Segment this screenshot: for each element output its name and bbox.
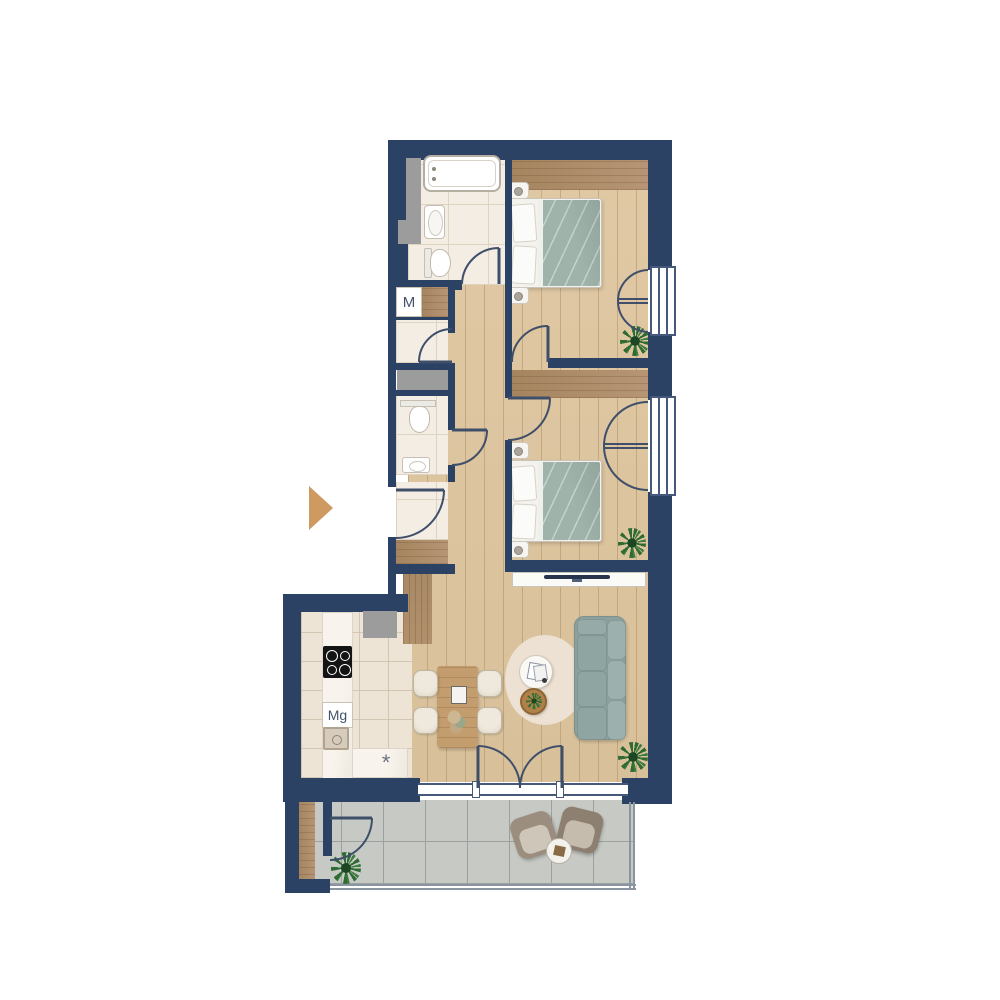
installation-shaft xyxy=(397,370,448,390)
wall-bedroom2-left xyxy=(505,368,512,398)
bedroom1-window xyxy=(650,266,676,336)
floor-plan-canvas: Mg * xyxy=(0,0,1000,1000)
closet-room-floor xyxy=(396,318,448,363)
wall-corridor-left xyxy=(448,282,455,333)
sofa-armrest xyxy=(577,619,607,635)
wall-right xyxy=(648,140,672,270)
balcony-wood-deck xyxy=(299,800,315,882)
wall-balcony-corner xyxy=(285,879,330,893)
balcony-window-sill xyxy=(418,783,628,796)
entry-hall-floor xyxy=(396,482,448,540)
kitchen-appliance-label: Mg xyxy=(322,702,353,728)
burner xyxy=(327,665,337,675)
bedroom2-pillow xyxy=(511,465,537,502)
wall-corridor-left xyxy=(448,363,455,430)
door-jamb xyxy=(472,781,480,798)
wall-right xyxy=(648,332,672,400)
bedroom2-duvet xyxy=(538,462,600,540)
bedroom1-duvet xyxy=(538,200,600,286)
wall-shaft-top xyxy=(393,363,448,370)
bathtub-inner xyxy=(428,160,496,187)
sofa-seat xyxy=(577,635,607,671)
burner xyxy=(339,664,351,676)
washing-machine-label: M xyxy=(396,287,422,317)
sofa-back-cushion xyxy=(607,660,626,700)
wall-left-middle xyxy=(388,282,396,487)
door-jamb xyxy=(556,781,564,798)
sink-basin xyxy=(428,210,443,236)
wall-bedroom1-left xyxy=(505,158,512,358)
coffee-table xyxy=(519,655,553,689)
sink-drain xyxy=(332,735,342,745)
closet-shelf xyxy=(422,287,448,317)
living-room-plant xyxy=(618,742,648,772)
burner xyxy=(326,650,338,662)
bedroom2-window xyxy=(650,396,676,496)
cooktop xyxy=(323,646,352,678)
installation-shaft xyxy=(406,158,421,220)
wall-right xyxy=(648,492,672,780)
tv-stand xyxy=(572,579,582,582)
wall-corridor-left xyxy=(448,465,455,482)
wc-sink-basin xyxy=(409,461,426,472)
wall-bedroom1-bottom xyxy=(548,358,648,368)
sofa xyxy=(574,616,626,740)
bedroom1-plant xyxy=(620,326,650,356)
wall-bottom-left xyxy=(283,778,420,802)
kitchen-counter-left xyxy=(322,612,353,780)
balcony-table xyxy=(546,838,572,864)
dining-chair xyxy=(477,707,502,734)
bedroom2-wardrobe xyxy=(512,370,648,398)
wc-sink xyxy=(402,457,430,473)
refrigerator xyxy=(363,611,397,638)
window-mullion xyxy=(658,398,660,494)
wall-shaft-bottom xyxy=(393,390,448,396)
balcony-table-decor xyxy=(553,845,566,857)
dining-chair xyxy=(413,670,438,697)
entry-wardrobe xyxy=(396,540,448,564)
dining-chair xyxy=(477,670,502,697)
kitchen-sink xyxy=(323,727,349,750)
dining-table-flowers xyxy=(447,708,467,734)
dining-chair xyxy=(413,707,438,734)
wc-toilet-bowl xyxy=(409,406,430,433)
bathroom-sink xyxy=(424,205,445,239)
side-table-plant xyxy=(526,693,542,709)
wall-entry-bottom xyxy=(388,564,455,574)
bedroom1-pillow xyxy=(511,203,538,243)
wall-bedroom2-left xyxy=(505,440,512,572)
balcony-railing-bottom xyxy=(330,884,636,890)
table-decor xyxy=(542,678,547,683)
wall-bedroom2-bottom xyxy=(505,560,648,572)
wall-left-upper xyxy=(388,140,408,282)
sofa-back-cushion xyxy=(607,700,626,740)
sofa-back-cushion xyxy=(607,620,626,660)
bathtub xyxy=(423,155,501,192)
dishwasher-label: * xyxy=(366,750,406,776)
window-mullion xyxy=(658,268,660,334)
bedroom1-pillow xyxy=(511,245,537,284)
dining-table xyxy=(437,666,478,748)
bathtub-faucet xyxy=(432,167,436,171)
window-mullion xyxy=(666,268,668,334)
wall-bedroom1-bottom xyxy=(505,358,512,368)
sofa-seat xyxy=(577,707,607,740)
wall-kitchen-top xyxy=(301,594,408,612)
toilet-bowl xyxy=(430,249,451,277)
wall-balcony-partition xyxy=(323,800,332,856)
bedroom1-wardrobe xyxy=(512,160,648,190)
balcony-plant xyxy=(331,852,361,884)
dining-table-tray xyxy=(451,686,467,704)
balcony-railing-right xyxy=(629,802,635,890)
window-mullion xyxy=(666,398,668,494)
bathtub-drain xyxy=(432,177,436,181)
sofa-seat xyxy=(577,671,607,707)
bedroom2-pillow xyxy=(511,503,537,539)
wall-kitchen-left xyxy=(283,594,301,780)
installation-shaft xyxy=(398,220,421,244)
wall-corner-bottom-right xyxy=(622,778,672,804)
burner xyxy=(340,651,350,661)
bedroom2-plant xyxy=(618,528,646,558)
entrance-arrow xyxy=(309,486,333,530)
